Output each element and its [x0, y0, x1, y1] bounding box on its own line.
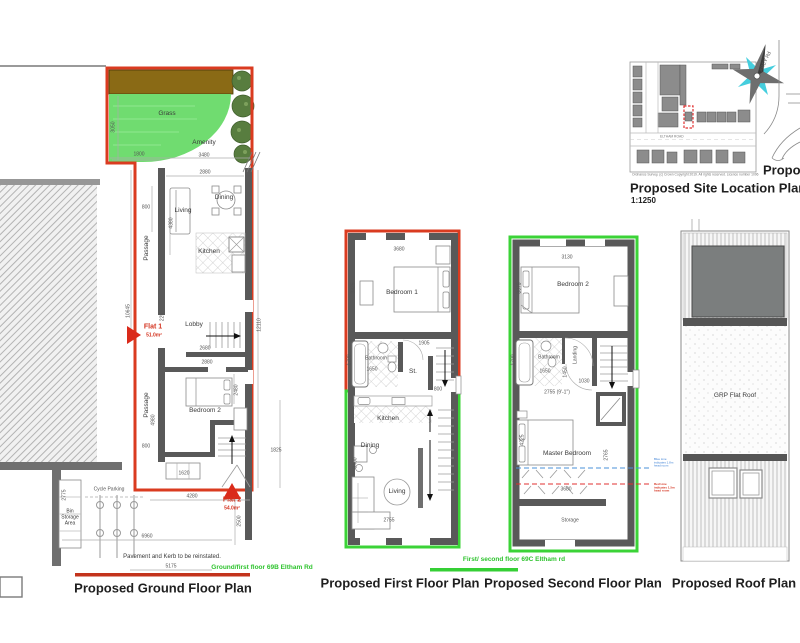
dim-3325: 3325	[352, 282, 357, 293]
roof-plan-title: Proposed Roof Plan	[672, 577, 796, 590]
landing-label: Landing	[574, 346, 579, 364]
dim-2880-upper: 2880	[199, 171, 210, 176]
storage-cupboard-label: St.	[409, 369, 417, 376]
address-69b: Ground/first floor 69B Eltham Rd	[211, 565, 312, 572]
dim-1030: 1030	[578, 380, 589, 385]
dim-3680-first: 3680	[393, 248, 404, 253]
bathroom-label-second: Bathroom	[538, 356, 560, 361]
flat1-label: Flat 1	[144, 324, 162, 331]
site-plan-title: Proposed Site Location Plan	[630, 182, 800, 195]
cycle-parking-label: Cycle Parking	[94, 488, 125, 493]
dim-1620: 1620	[178, 472, 189, 477]
dim-10645: 10645	[127, 304, 132, 318]
dim-3050: 3050	[112, 121, 117, 132]
site-plan-scale: 1:1250	[631, 197, 656, 205]
os-copyright: Ordnance Survey, (c) Crown Copyright 201…	[632, 173, 759, 176]
living-label-first: Living	[389, 489, 406, 496]
dim-800-living: 800	[142, 206, 150, 211]
dim-2765: 2765	[605, 449, 610, 460]
roof-plan-drawing	[681, 219, 789, 561]
dim-2680: 2680	[199, 347, 210, 352]
map-road-label: ELTHAM ROAD	[660, 135, 684, 138]
bedroom1-label: Bedroom 1	[386, 290, 418, 297]
dim-1825: 1825	[270, 449, 281, 454]
bin-storage-label: Bin Storage Area	[57, 509, 83, 526]
flat2-label: Flat 2	[223, 497, 241, 504]
dim-2755-first: 2755	[383, 519, 394, 524]
dim-6960: 6960	[141, 535, 152, 540]
dim-12110: 12110	[258, 318, 263, 332]
amenity-label: Amenity	[192, 140, 215, 147]
flat1-area: 51.0m²	[146, 334, 162, 339]
kitchen-label-ground: Kitchen	[198, 249, 220, 256]
address-69c: First/ second floor 69C Eltham rd	[463, 557, 565, 564]
grass-label: Grass	[158, 111, 175, 118]
dim-3400: 3400	[354, 457, 359, 468]
bedroom2-label-ground: Bedroom 2	[189, 408, 221, 415]
dim-2755-ft: 2755 (9'-1")	[544, 391, 570, 396]
dim-1650-second: 1650	[539, 370, 550, 375]
dim-4280: 4280	[186, 495, 197, 500]
dim-3130: 3130	[561, 256, 572, 261]
second-floor-title: Proposed Second Floor Plan	[484, 577, 662, 590]
dim-2775: 2775	[63, 489, 68, 500]
dim-3480: 3480	[198, 154, 209, 159]
dining-label-first: Dining	[361, 443, 379, 450]
dim-1650-first: 1650	[366, 368, 377, 373]
architectural-drawing-sheet: Grass 3050 1800 Amenity 3480 2880 800 Li…	[0, 0, 800, 643]
pavement-note: Pavement and Kerb to be reinstated.	[123, 554, 221, 560]
dim-3075: 3075	[518, 282, 523, 293]
grp-flat-roof-label: GRP Flat Roof	[714, 393, 756, 400]
passage-label-lower: Passage	[144, 392, 151, 417]
ground-floor-title: Proposed Ground Floor Plan	[74, 582, 252, 595]
dim-4380: 4380	[170, 217, 175, 228]
master-bedroom-label: Master Bedroom	[543, 451, 591, 458]
red-line-note: Red Line indicates 1.5m head room	[654, 483, 675, 493]
flat2-area: 54.0m²	[224, 507, 240, 512]
dim-3680-second: 3680	[560, 488, 571, 493]
dim-800-lower: 800	[142, 445, 150, 450]
dim-2880-lower: 2880	[201, 361, 212, 366]
dim-1450: 1450	[564, 366, 569, 377]
floor-plan-linework	[0, 0, 800, 643]
storage-label: Storage	[561, 519, 579, 524]
lobby-label: Lobby	[185, 322, 203, 329]
dim-4225: 4225	[521, 434, 526, 445]
dining-label: Dining	[215, 195, 233, 202]
living-label: Living	[175, 208, 192, 215]
bedroom2-label-second: Bedroom 2	[557, 282, 589, 289]
dim-800-first: 800	[434, 388, 442, 393]
dim-1905: 1905	[418, 342, 429, 347]
passage-label-upper: Passage	[144, 235, 151, 260]
dim-1700-second: 1700	[512, 354, 517, 365]
dim-2480: 2480	[235, 384, 240, 395]
site-location-plan-drawing	[630, 36, 800, 172]
dim-2500: 2500	[238, 515, 243, 526]
dim-1800: 1800	[133, 153, 144, 158]
bathroom-label-first: Bathroom	[365, 357, 387, 362]
kitchen-label-first: Kitchen	[377, 416, 399, 423]
partial-title-cutoff: Propose	[763, 164, 800, 177]
dim-4980: 4980	[152, 414, 157, 425]
blue-line-note: Blue Line indicates 1.8m head room	[654, 458, 675, 468]
dim-5175: 5175	[165, 565, 176, 570]
first-floor-title: Proposed First Floor Plan	[321, 577, 480, 590]
dim-225: 225	[161, 313, 166, 321]
first-floor-plan-drawing	[346, 231, 518, 572]
dim-1700-first: 1700	[348, 354, 353, 365]
